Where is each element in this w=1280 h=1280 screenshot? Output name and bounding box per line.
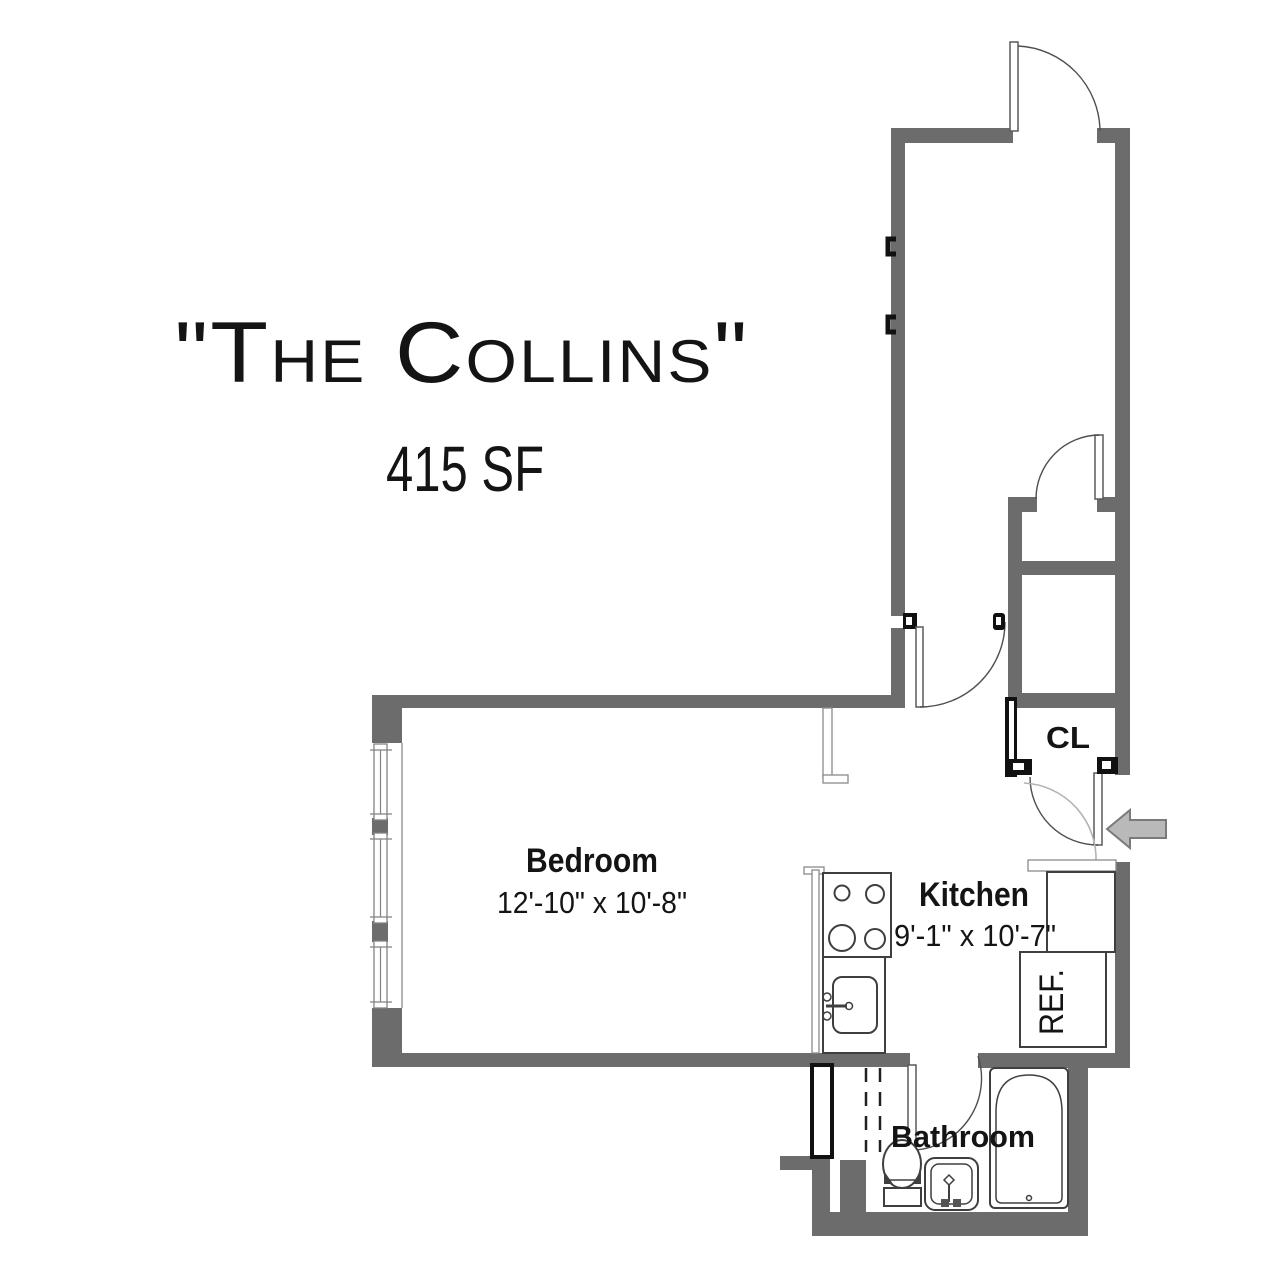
floor-plan-page: "The Collins" 415 SF (0, 0, 1280, 1280)
door-leaf-unit-entry (1094, 773, 1102, 845)
stove-burner (866, 885, 884, 903)
bathroom-label: Bathroom (891, 1119, 1035, 1154)
bedroom-dimensions: 12'-10" x 10'-8" (497, 885, 687, 920)
partition-wing-foot (823, 775, 848, 783)
kitchen-label: Kitchen (919, 876, 1029, 914)
counter-left-edge (812, 870, 819, 1053)
bath-faucet-tap (941, 1199, 949, 1207)
pocket-door-panel (812, 1065, 832, 1157)
door-leaf-top-entry (1010, 42, 1018, 131)
cl-frame-right-notch (1102, 761, 1111, 769)
wall-closet-mid (1008, 561, 1130, 575)
door-swing-unit-entry (1030, 777, 1098, 845)
wall-bathroom-left (812, 1158, 830, 1236)
door-leaf-hall-closet (1095, 435, 1103, 499)
wall-right-upper (1115, 143, 1130, 775)
bedroom-label: Bedroom (526, 842, 658, 880)
door-leaf-corridor (916, 627, 923, 707)
kitchen-counter (1047, 872, 1115, 952)
door-swing-corridor (920, 622, 1005, 707)
wall-left-stub (780, 1156, 813, 1170)
door-jamb-notch (891, 616, 903, 628)
wall-bedroom-top (372, 695, 905, 708)
wall-toilet-niche (840, 1160, 866, 1214)
wall-right-lower (1115, 862, 1130, 1068)
window-pier-2 (372, 921, 388, 942)
door-swing-cl-closet (1024, 783, 1096, 862)
wall-closet-left (1008, 497, 1022, 700)
stove-burner (865, 929, 885, 949)
cl-frame-left-notch (1009, 701, 1014, 761)
refrigerator-label: REF. (1033, 969, 1071, 1035)
door-swing-hall-closet (1036, 435, 1099, 499)
wall-bathroom-bottom (812, 1212, 1088, 1236)
wall-top-left (891, 128, 1013, 143)
stove-burner (835, 886, 850, 901)
entry-arrow-icon (1107, 810, 1166, 848)
wall-bedroom-nw-corner (372, 695, 402, 743)
wall-bathroom-top (978, 1053, 1130, 1068)
door-stop-notch (996, 617, 1001, 625)
closet-label: CL (1046, 720, 1090, 755)
stove-burner (829, 925, 855, 951)
toilet-tank (884, 1188, 921, 1206)
entry-threshold (1028, 860, 1116, 871)
kitchen-dimensions: 9'-1" x 10'-7" (894, 918, 1056, 953)
plan-area: 415 SF (386, 433, 544, 505)
door-hinge-notch (906, 617, 912, 625)
title-block: "The Collins" 415 SF (175, 305, 750, 505)
wall-bathroom-right (1068, 1068, 1088, 1236)
bath-faucet-tap (953, 1199, 961, 1207)
wall-top-right (1097, 128, 1130, 143)
wall-bedroom-sw-corner (372, 1008, 402, 1054)
door-swing-top-entry (1018, 46, 1100, 131)
plan-title: "The Collins" (175, 305, 750, 401)
wall-cl-top (1008, 693, 1130, 708)
partition-wing-wall (823, 708, 832, 778)
floor-plan-drawing: "The Collins" 415 SF (0, 0, 1280, 1280)
cl-frame-foot-notch (1013, 763, 1024, 770)
bedroom-windows (370, 743, 402, 1008)
